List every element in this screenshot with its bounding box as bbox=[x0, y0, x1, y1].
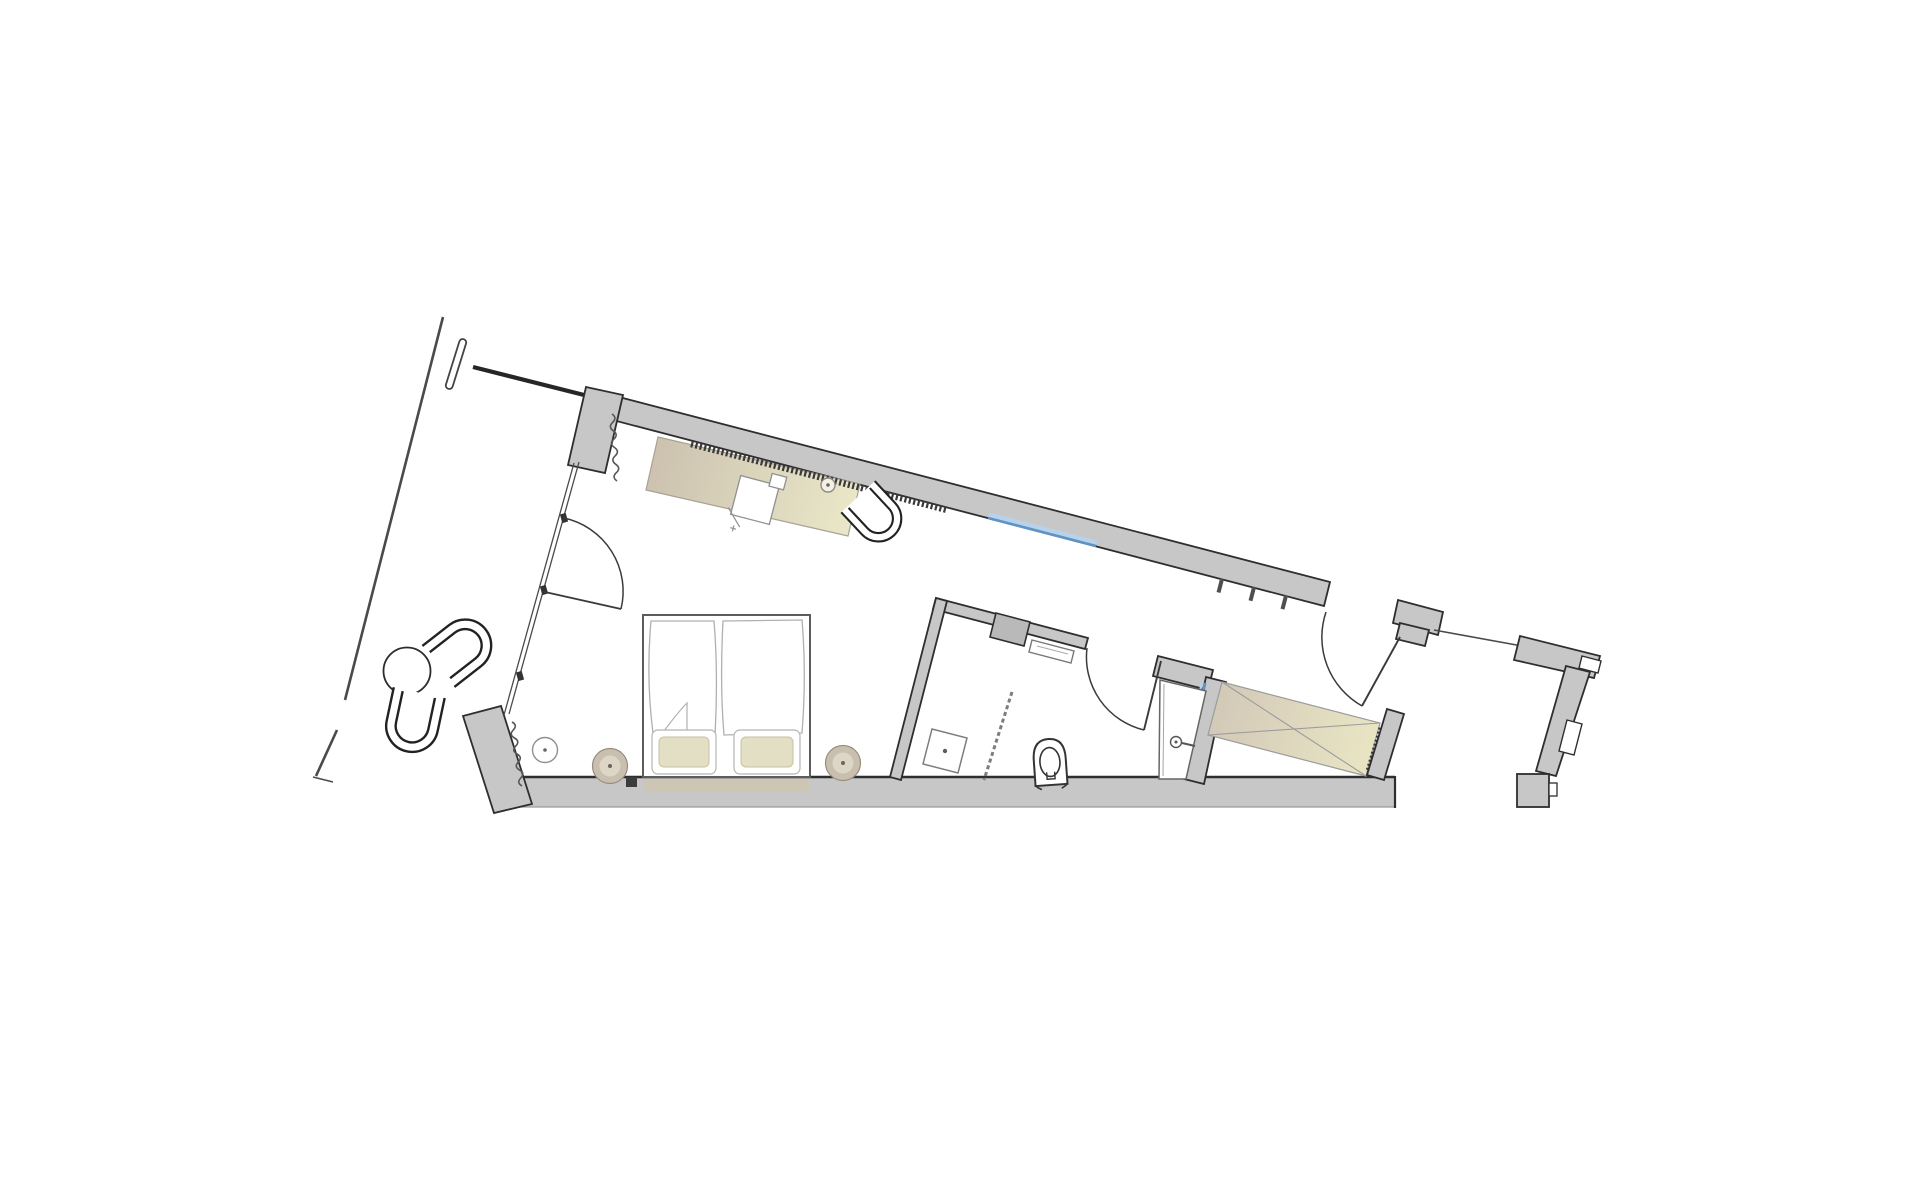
adjacent-structure bbox=[1514, 636, 1601, 807]
balcony-round-table bbox=[384, 648, 431, 695]
balcony-lounge-chair-upper bbox=[422, 609, 501, 687]
wall-break-mark bbox=[445, 338, 467, 390]
entry bbox=[1322, 612, 1400, 706]
entry-door-leaf bbox=[1362, 637, 1400, 706]
pillar-top-left bbox=[568, 387, 623, 473]
balcony-outer-wall-line-lower bbox=[316, 730, 337, 776]
coat-hook bbox=[1219, 579, 1223, 593]
top-wall bbox=[568, 387, 1522, 646]
balcony-door-swing bbox=[564, 518, 623, 609]
wall-step-notch bbox=[626, 777, 637, 787]
side-table-small bbox=[533, 738, 558, 763]
bathroom bbox=[890, 598, 1226, 790]
balcony-door-leaf bbox=[545, 592, 621, 609]
bedside-stool-right bbox=[826, 746, 861, 781]
bed-zone bbox=[533, 615, 861, 784]
desk-lamp-dot bbox=[826, 483, 830, 487]
coat-hook bbox=[1283, 596, 1287, 610]
bathroom-door-leaf bbox=[1144, 661, 1161, 730]
corridor-wall-bottom-block bbox=[1517, 774, 1549, 807]
bed-headboard-strip bbox=[644, 779, 809, 791]
toilet bbox=[1032, 738, 1067, 790]
mullion-block bbox=[540, 585, 548, 595]
entry-door-swing bbox=[1322, 612, 1362, 706]
mullion-block bbox=[516, 671, 524, 681]
threshold-line bbox=[1434, 630, 1522, 646]
bathroom-left-wall bbox=[890, 598, 947, 780]
floor-plan-page bbox=[0, 0, 1920, 1200]
balcony-foot-line bbox=[313, 777, 333, 782]
corridor-wall-strip bbox=[1536, 666, 1590, 776]
shower-drain bbox=[943, 749, 947, 753]
bathroom-duct-block bbox=[990, 613, 1030, 646]
shower-glass-partition bbox=[984, 692, 1012, 780]
duvet-right bbox=[722, 620, 805, 735]
neighbor-boundary-wall bbox=[473, 367, 592, 397]
glazed-balcony-wall bbox=[504, 462, 623, 715]
bedside-stool-left bbox=[593, 749, 628, 784]
floor-plan-drawing bbox=[0, 0, 1920, 1200]
pillow-right bbox=[734, 730, 800, 774]
pillow-left bbox=[652, 730, 716, 774]
glass-wall-line-inner bbox=[504, 463, 574, 715]
coat-hook bbox=[1251, 587, 1255, 601]
pillar-bottom-left bbox=[463, 706, 532, 813]
bottom-block-notch bbox=[1549, 783, 1557, 796]
bathroom-door-swing bbox=[1086, 648, 1144, 730]
wardrobe-niche bbox=[1208, 682, 1404, 780]
balcony-lounge-chair-lower bbox=[381, 687, 444, 757]
